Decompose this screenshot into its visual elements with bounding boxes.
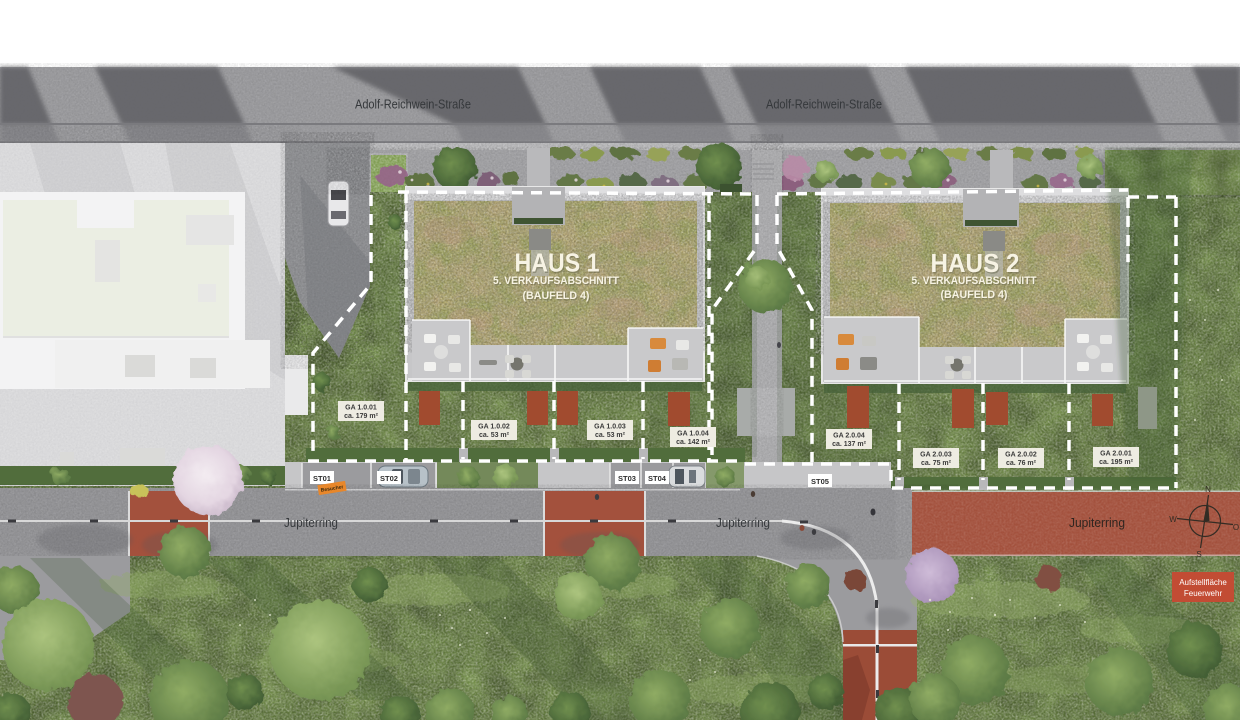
svg-text:ST01: ST01 bbox=[313, 474, 331, 483]
svg-text:ST04: ST04 bbox=[648, 474, 667, 483]
svg-text:ca. 179 m²: ca. 179 m² bbox=[344, 413, 379, 420]
svg-text:HAUS 1: HAUS 1 bbox=[515, 248, 600, 278]
svg-text:GA 1.0.04: GA 1.0.04 bbox=[677, 431, 709, 438]
svg-text:ST02: ST02 bbox=[380, 474, 398, 483]
svg-text:Jupiterring: Jupiterring bbox=[716, 515, 770, 530]
svg-text:ca. 76 m²: ca. 76 m² bbox=[1006, 460, 1037, 467]
svg-text:GA 1.0.03: GA 1.0.03 bbox=[594, 424, 626, 431]
svg-text:Jupiterring: Jupiterring bbox=[284, 515, 338, 530]
svg-text:ca. 137 m²: ca. 137 m² bbox=[832, 441, 867, 448]
svg-text:GA 2.0.01: GA 2.0.01 bbox=[1100, 451, 1132, 458]
svg-text:Adolf-Reichwein-Straße: Adolf-Reichwein-Straße bbox=[355, 97, 471, 112]
svg-text:5. VERKAUFSABSCHNITT: 5. VERKAUFSABSCHNITT bbox=[493, 275, 619, 287]
svg-text:(BAUFELD 4): (BAUFELD 4) bbox=[523, 290, 590, 302]
svg-text:GA 2.0.04: GA 2.0.04 bbox=[833, 433, 865, 440]
svg-text:ca. 53 m²: ca. 53 m² bbox=[479, 432, 510, 439]
svg-text:ST03: ST03 bbox=[618, 474, 636, 483]
svg-text:W: W bbox=[1169, 515, 1177, 524]
svg-text:(BAUFELD 4): (BAUFELD 4) bbox=[941, 289, 1008, 301]
svg-text:ca. 195 m²: ca. 195 m² bbox=[1099, 459, 1134, 466]
svg-text:N: N bbox=[1205, 485, 1211, 494]
svg-text:5. VERKAUFSABSCHNITT: 5. VERKAUFSABSCHNITT bbox=[912, 275, 1037, 287]
svg-text:S: S bbox=[1196, 550, 1201, 559]
svg-text:Adolf-Reichwein-Straße: Adolf-Reichwein-Straße bbox=[766, 97, 882, 112]
svg-text:ca. 142 m²: ca. 142 m² bbox=[676, 439, 711, 446]
svg-text:ca. 53 m²: ca. 53 m² bbox=[595, 432, 626, 439]
svg-text:GA 2.0.02: GA 2.0.02 bbox=[1005, 452, 1037, 459]
svg-text:ST05: ST05 bbox=[811, 477, 829, 486]
svg-text:GA 1.0.01: GA 1.0.01 bbox=[345, 405, 377, 412]
svg-text:ca. 75 m²: ca. 75 m² bbox=[921, 460, 952, 467]
svg-text:HAUS 2: HAUS 2 bbox=[931, 248, 1020, 278]
svg-text:Jupiterring: Jupiterring bbox=[1069, 515, 1125, 530]
svg-text:GA 2.0.03: GA 2.0.03 bbox=[920, 452, 952, 459]
svg-text:Aufstellfläche: Aufstellfläche bbox=[1179, 578, 1227, 587]
svg-text:O: O bbox=[1233, 523, 1239, 532]
svg-text:Feuerwehr: Feuerwehr bbox=[1184, 589, 1223, 598]
svg-text:GA 1.0.02: GA 1.0.02 bbox=[478, 424, 510, 431]
